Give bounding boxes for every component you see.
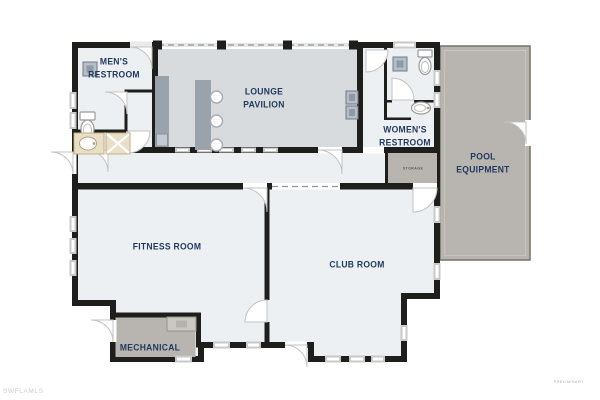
watermark-preliminary: PRELIMINARY xyxy=(554,379,584,384)
bar-stool xyxy=(211,139,223,151)
mechanical-equipment xyxy=(167,317,196,331)
room-label-storage: STORAGE xyxy=(403,166,424,171)
watermark-brand: SWFLAMLS xyxy=(3,388,44,395)
room-label-mechanical: MECHANICAL xyxy=(120,342,180,355)
bar-stool xyxy=(211,91,223,103)
room-label-lounge-pavilion: LOUNGE PAVILION xyxy=(243,85,284,110)
room-label-club-room: CLUB ROOM xyxy=(329,259,384,272)
room-label-mens-restroom: MEN'S RESTROOM xyxy=(88,55,140,80)
pavilion-island xyxy=(195,80,223,151)
bar-stool xyxy=(211,115,223,127)
room-label-pool-equipment: POOL EQUIPMENT xyxy=(456,150,509,175)
pavilion-screen-wall xyxy=(153,41,358,50)
room-label-fitness-room: FITNESS ROOM xyxy=(133,241,202,254)
pavilion-counter xyxy=(155,76,169,147)
floor-plan: MEN'S RESTROOM LOUNGE PAVILION WOMEN'S R… xyxy=(0,0,600,400)
room-label-womens-restroom: WOMEN'S RESTROOM xyxy=(379,123,431,148)
